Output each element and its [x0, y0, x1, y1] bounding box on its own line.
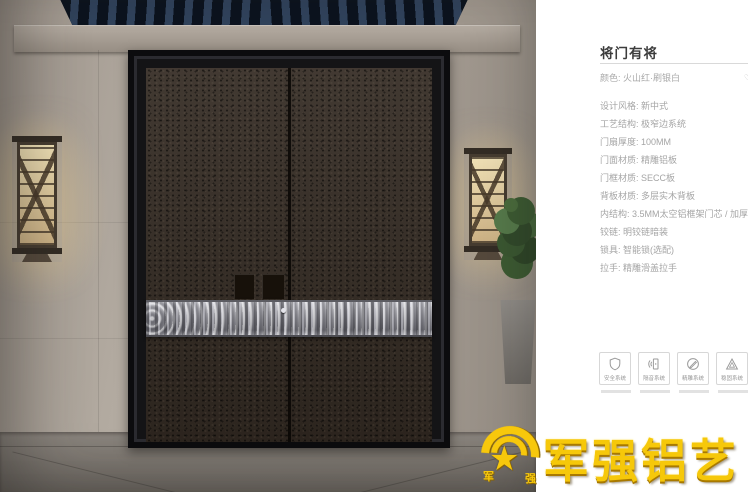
- feature-label: 隔音系统: [643, 373, 665, 381]
- band-knob: [281, 308, 286, 313]
- color-value: 颜色: 火山红·刷银白: [600, 71, 680, 84]
- feature-caption-text: [601, 390, 631, 393]
- door-frame: [128, 50, 450, 448]
- emblem-char-right: 强: [525, 470, 536, 486]
- model-value: ♡ 型号: JC: [744, 71, 748, 84]
- feature-caption-text: [640, 390, 670, 393]
- soundproof-icon: [647, 357, 661, 371]
- feature-stability: 稳固系统: [716, 352, 748, 393]
- ceiling-beams-left: [52, 0, 264, 27]
- feature-label: 稳固系统: [721, 373, 743, 381]
- brand-name: 军强铝艺: [543, 425, 739, 491]
- carved-silver-band: [146, 300, 432, 337]
- shield-icon: [608, 357, 622, 371]
- spec-line: 门扇厚度: 100MM: [600, 133, 748, 151]
- brand-emblem: ★ 军 强: [477, 424, 543, 492]
- feature-box: 精雕系统: [677, 352, 709, 385]
- spec-line: 锁具: 智能锁(选配): [600, 241, 748, 259]
- spec-line: 背板材质: 多层实木背板: [600, 187, 748, 205]
- carving-icon: [686, 357, 700, 371]
- spec-line: 门面材质: 精雕铝板: [600, 151, 748, 169]
- door-center-seam: [288, 68, 291, 442]
- brand-logo: ★ 军 强 军强铝艺: [477, 424, 748, 492]
- lamp-cap: [12, 248, 62, 254]
- feature-box: 安全系统: [599, 352, 631, 385]
- door-handle-right: [262, 274, 284, 299]
- entrance-photo: [0, 0, 536, 492]
- feature-badges: 安全系统 隔音系统 精雕系统: [599, 352, 748, 393]
- lamp-cap: [464, 246, 512, 252]
- spec-line: 拉手: 精雕滑盖拉手: [600, 259, 748, 277]
- spec-list: 设计风格: 新中式 工艺结构: 极窄边系统 门扇厚度: 100MM 门面材质: …: [600, 97, 748, 277]
- spec-line: 门框材质: SECC板: [600, 169, 748, 187]
- spec-line: 设计风格: 新中式: [600, 97, 748, 115]
- page: 将门有将 颜色: 火山红·刷银白 ♡ 型号: JC 设计风格: 新中式 工艺结构…: [0, 0, 748, 492]
- emblem-char-left: 军: [483, 468, 494, 484]
- spec-line: 工艺结构: 极窄边系统: [600, 115, 748, 133]
- feature-carving: 精雕系统: [677, 352, 711, 393]
- spec-line: 内结构: 3.5MM太空铝框架门芯 / 加厚加密航空铝蜂: [600, 205, 748, 223]
- feature-box: 隔音系统: [638, 352, 670, 385]
- lamp-bracket: [22, 254, 52, 262]
- feature-soundproof: 隔音系统: [638, 352, 672, 393]
- feature-safety: 安全系统: [599, 352, 633, 393]
- spec-line: 铰链: 明铰链暗装: [600, 223, 748, 241]
- floor-tile-line: [12, 451, 177, 492]
- feature-caption-text: [679, 390, 709, 393]
- planter-pot: [498, 300, 536, 384]
- model-mark-icon: ♡: [744, 74, 748, 82]
- feature-label: 精雕系统: [682, 373, 704, 381]
- title-divider: [600, 63, 748, 64]
- green-plant: [504, 198, 518, 212]
- lamp-lattice-panel: [17, 142, 57, 248]
- ceiling-beams: [52, 0, 476, 27]
- stone-lintel: [14, 25, 520, 52]
- stability-icon: [725, 357, 739, 371]
- feature-caption-text: [718, 390, 748, 393]
- feature-box: 稳固系统: [716, 352, 748, 385]
- lamp-lattice-panel: [469, 154, 507, 246]
- double-door-leaves: [146, 68, 432, 442]
- product-title: 将门有将: [600, 42, 658, 62]
- color-model-row: 颜色: 火山红·刷银白 ♡ 型号: JC: [600, 71, 748, 84]
- ceiling-beams-right: [264, 0, 476, 27]
- door-handle-left: [234, 274, 254, 299]
- feature-label: 安全系统: [604, 373, 626, 381]
- lamp-bracket: [474, 252, 503, 260]
- wall-lamp-left: [12, 136, 62, 262]
